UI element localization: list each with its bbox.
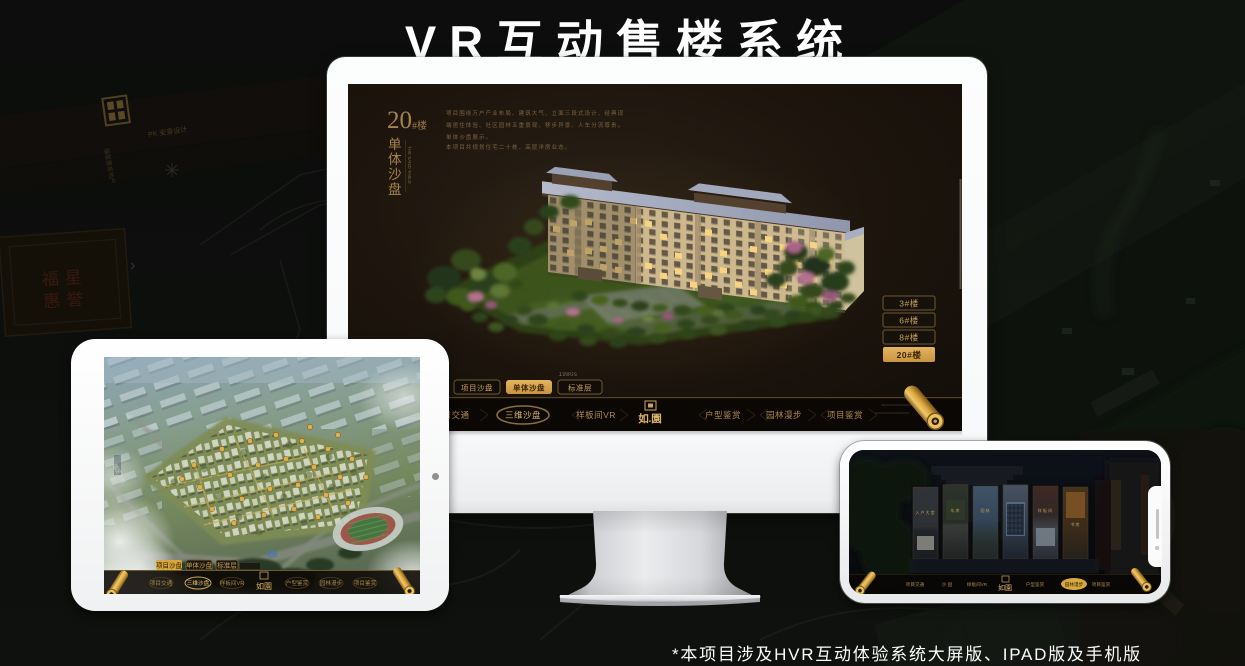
svg-text:样板间VR: 样板间VR xyxy=(220,579,245,587)
svg-text:入 户 大 堂: 入 户 大 堂 xyxy=(915,509,934,515)
svg-text:#楼: #楼 xyxy=(412,119,427,132)
svg-text:单体沙盘: 单体沙盘 xyxy=(186,561,213,570)
svg-text:园 林: 园 林 xyxy=(980,507,989,513)
svg-text:三维沙盘: 三维沙盘 xyxy=(187,579,210,587)
svg-text:›: › xyxy=(130,257,135,274)
svg-text:单体沙盘: 单体沙盘 xyxy=(513,383,545,393)
svg-text:20#楼: 20#楼 xyxy=(897,350,922,360)
svg-text:项目交通: 项目交通 xyxy=(906,581,925,588)
svg-text:单体沙盘展示。: 单体沙盘展示。 xyxy=(446,133,492,141)
svg-text:样板间VR: 样板间VR xyxy=(967,581,988,588)
svg-text:项目鉴赏: 项目鉴赏 xyxy=(827,410,863,420)
svg-text:3#楼: 3#楼 xyxy=(899,299,918,309)
svg-text:三维沙盘: 三维沙盘 xyxy=(505,410,541,420)
svg-text:项目沙盘: 项目沙盘 xyxy=(156,561,183,570)
svg-text:如園: 如園 xyxy=(256,581,272,591)
svg-text:项目交通: 项目交通 xyxy=(150,579,173,587)
svg-text:项目围绕万户产业布局、建筑大气、立面三段式设计、经典现: 项目围绕万户产业布局、建筑大气、立面三段式设计、经典现 xyxy=(446,109,624,117)
svg-text:8#楼: 8#楼 xyxy=(899,333,918,343)
svg-text:1980s: 1980s xyxy=(559,372,578,378)
svg-text:如園: 如園 xyxy=(998,583,1012,592)
svg-text:20: 20 xyxy=(387,107,412,134)
svg-text:园林漫步: 园林漫步 xyxy=(1065,581,1084,588)
svg-text:6#楼: 6#楼 xyxy=(899,316,918,326)
svg-text:端居住体验、社区园林五重景观、移步异景、人车分流尊贵。: 端居住体验、社区园林五重景观、移步异景、人车分流尊贵。 xyxy=(446,121,624,129)
svg-text:单: 单 xyxy=(388,137,402,152)
svg-text:项目鉴赏: 项目鉴赏 xyxy=(354,579,377,587)
svg-text:项目沙盘: 项目沙盘 xyxy=(461,383,493,393)
svg-text:本项目共规划住宅二十栋、高层洋房业态。: 本项目共规划住宅二十栋、高层洋房业态。 xyxy=(446,143,571,151)
svg-text:如.園: 如.園 xyxy=(638,412,662,425)
svg-text:园林漫步: 园林漫步 xyxy=(766,410,802,420)
svg-text:项目鉴赏: 项目鉴赏 xyxy=(1092,581,1111,588)
svg-text:园林漫步: 园林漫步 xyxy=(320,579,343,587)
svg-text:样 板 间: 样 板 间 xyxy=(1038,507,1052,513)
svg-text:户型鉴赏: 户型鉴赏 xyxy=(1026,581,1045,588)
svg-text:书 房: 书 房 xyxy=(1070,521,1079,527)
svg-text:标准层: 标准层 xyxy=(217,561,237,570)
svg-text:沙: 沙 xyxy=(388,167,402,182)
svg-text:户型鉴赏: 户型鉴赏 xyxy=(286,579,309,587)
svg-text:惠誉: 惠誉 xyxy=(43,289,90,311)
svg-text:户型鉴赏: 户型鉴赏 xyxy=(705,410,741,420)
svg-text:盘: 盘 xyxy=(388,181,402,197)
svg-text:样板间VR: 样板间VR xyxy=(576,410,616,420)
svg-text:沙 盘: 沙 盘 xyxy=(942,581,953,587)
svg-text:标准层: 标准层 xyxy=(568,383,592,393)
svg-text:体: 体 xyxy=(388,152,402,167)
svg-text:福星: 福星 xyxy=(41,267,88,289)
svg-text:THE SAND TABLE: THE SAND TABLE xyxy=(407,146,412,184)
svg-text:车 库: 车 库 xyxy=(950,507,959,513)
